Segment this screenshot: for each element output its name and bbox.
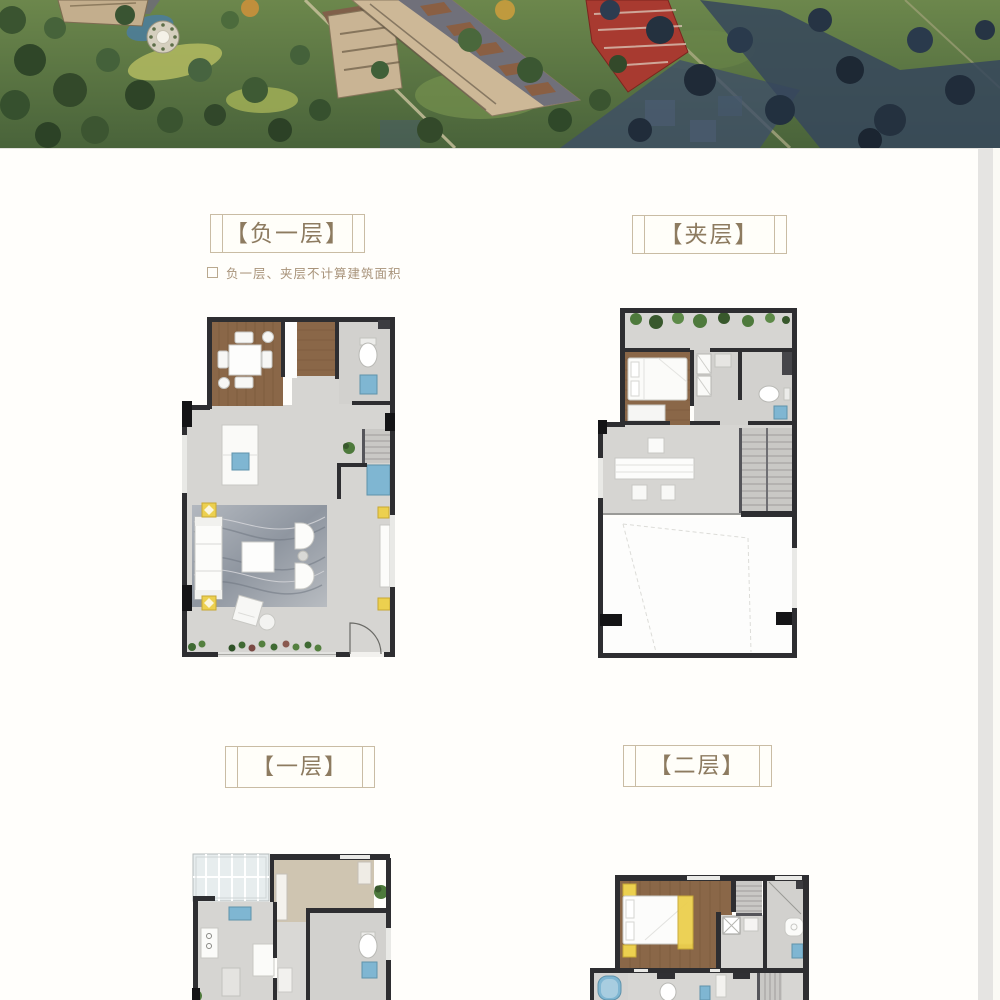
hall-doors <box>723 917 758 934</box>
stairs <box>739 428 792 513</box>
page-root: 【负一层】 【夹层】 【一层】 【二层】 负一层、夹层不计算建筑面积 <box>0 0 1000 1000</box>
floorplan-floor2 <box>590 868 810 1000</box>
section-title-mezzanine-label: 【夹层】 <box>660 216 760 253</box>
area-note: 负一层、夹层不计算建筑面积 <box>207 263 402 282</box>
page-right-edge <box>993 148 1000 1000</box>
section-title-floor2: 【二层】 <box>623 745 772 787</box>
bathroom-fixtures <box>359 932 377 978</box>
glass-terrace <box>193 854 269 901</box>
section-title-floor1: 【一层】 <box>225 746 375 788</box>
section-title-floor2-label: 【二层】 <box>649 746 745 786</box>
aerial-rendering-graphic <box>0 0 1000 148</box>
plant <box>343 442 355 454</box>
section-title-basement-label: 【负一层】 <box>225 215 350 252</box>
area-note-text: 负一层、夹层不计算建筑面积 <box>226 263 402 282</box>
stairs-lower <box>757 973 782 1000</box>
floorplan-basement <box>182 317 395 657</box>
scrollbar-track[interactable] <box>978 148 993 1000</box>
aerial-rendering-photo <box>0 0 1000 149</box>
section-title-floor1-label: 【一层】 <box>252 747 348 787</box>
kitchen-island <box>222 425 258 485</box>
floorplan-mezzanine <box>598 308 797 658</box>
floorplan-floor1 <box>192 850 400 1000</box>
stairs-upper <box>736 881 762 916</box>
stairs <box>362 429 390 463</box>
section-title-basement: 【负一层】 <box>210 214 365 253</box>
checkbox-icon <box>207 267 218 278</box>
section-title-mezzanine: 【夹层】 <box>632 215 787 254</box>
